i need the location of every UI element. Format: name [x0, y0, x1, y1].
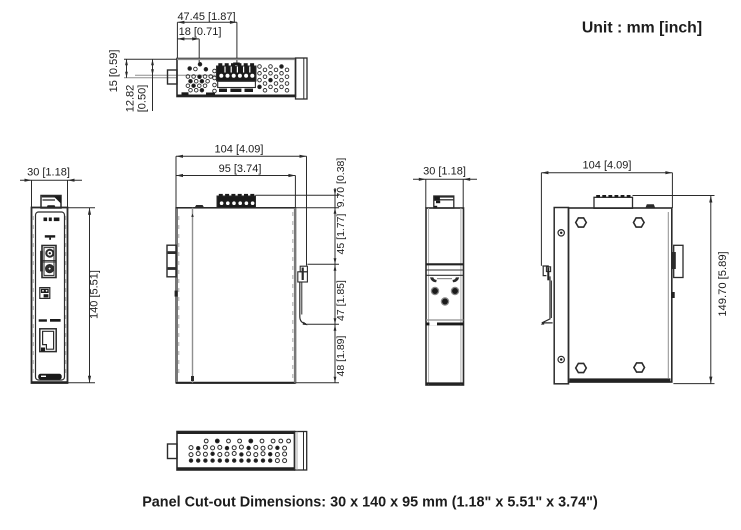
svg-text:15 [0.59]: 15 [0.59] — [108, 50, 120, 93]
svg-text:48 [1.89]: 48 [1.89] — [335, 335, 347, 376]
svg-text:Panel Cut-out Dimensions: 30 x: Panel Cut-out Dimensions: 30 x 140 x 95 … — [142, 495, 598, 511]
svg-text:12.82: 12.82 — [125, 85, 137, 113]
svg-text:104 [4.09]: 104 [4.09] — [583, 160, 632, 172]
svg-text:140 [5.51]: 140 [5.51] — [89, 270, 101, 319]
svg-text:9.70 [0.38]: 9.70 [0.38] — [335, 158, 347, 208]
svg-text:30 [1.18]: 30 [1.18] — [423, 166, 466, 178]
svg-text:45 [1.77]: 45 [1.77] — [335, 213, 347, 254]
svg-text:[0.50]: [0.50] — [137, 85, 149, 113]
svg-text:47 [1.85]: 47 [1.85] — [335, 280, 347, 321]
svg-text:47.45 [1.87]: 47.45 [1.87] — [177, 11, 235, 23]
svg-text:30 [1.18]: 30 [1.18] — [27, 167, 70, 179]
svg-text:95 [3.74]: 95 [3.74] — [219, 163, 262, 175]
svg-text:18 [0.71]: 18 [0.71] — [179, 26, 222, 38]
svg-text:149.70 [5.89]: 149.70 [5.89] — [717, 251, 729, 316]
svg-text:Unit : mm [inch]: Unit : mm [inch] — [582, 20, 702, 37]
svg-text:104 [4.09]: 104 [4.09] — [215, 144, 264, 156]
